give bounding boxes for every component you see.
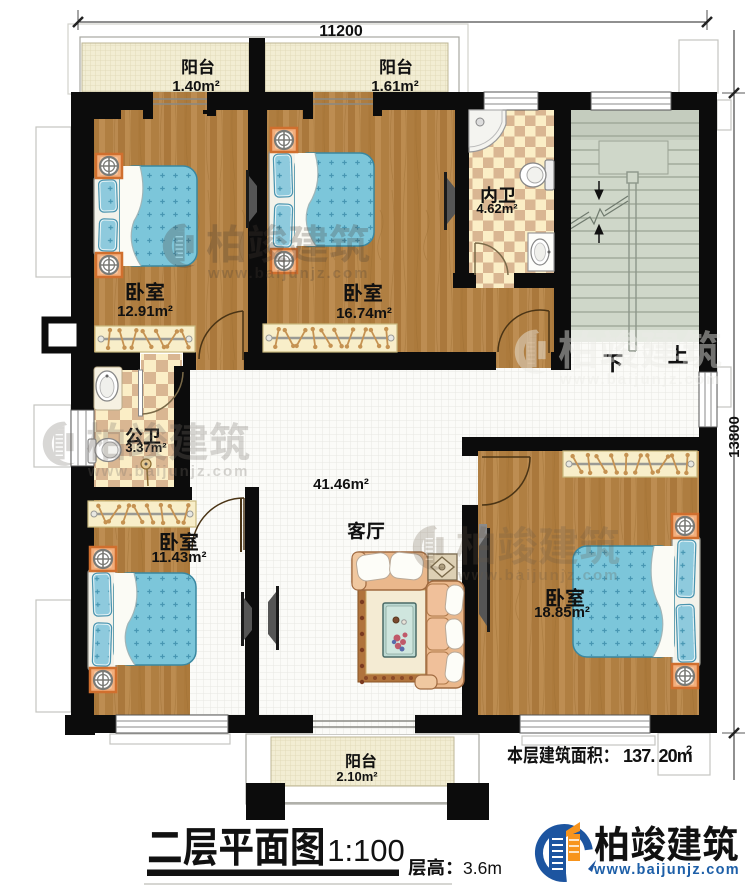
svg-text:www.baijunjz.com: www.baijunjz.com — [87, 463, 249, 480]
svg-text:www.baijunjz.com: www.baijunjz.com — [559, 371, 721, 388]
svg-text:3.6m: 3.6m — [463, 858, 502, 878]
svg-text:www.baijunjz.com: www.baijunjz.com — [593, 862, 740, 878]
svg-text:18.85m²: 18.85m² — [534, 604, 590, 621]
svg-text:13800: 13800 — [726, 416, 743, 458]
svg-text:1.40m²: 1.40m² — [172, 78, 220, 95]
svg-text:11200: 11200 — [319, 23, 363, 40]
svg-text:137. 20m: 137. 20m — [623, 746, 692, 766]
svg-text:16.74m²: 16.74m² — [336, 305, 392, 322]
svg-text:www.baijunjz.com: www.baijunjz.com — [207, 265, 369, 282]
svg-text:41.46m²: 41.46m² — [313, 476, 369, 493]
svg-text:12.91m²: 12.91m² — [117, 303, 173, 320]
svg-text:2: 2 — [686, 744, 692, 756]
svg-text:11.43m²: 11.43m² — [151, 549, 206, 566]
svg-text:4.62m²: 4.62m² — [476, 201, 518, 216]
svg-text:2.10m²: 2.10m² — [336, 769, 378, 784]
svg-text:1.61m²: 1.61m² — [371, 78, 419, 95]
svg-text:www.baijunjz.com: www.baijunjz.com — [457, 567, 619, 584]
svg-text:1:100: 1:100 — [327, 833, 405, 868]
